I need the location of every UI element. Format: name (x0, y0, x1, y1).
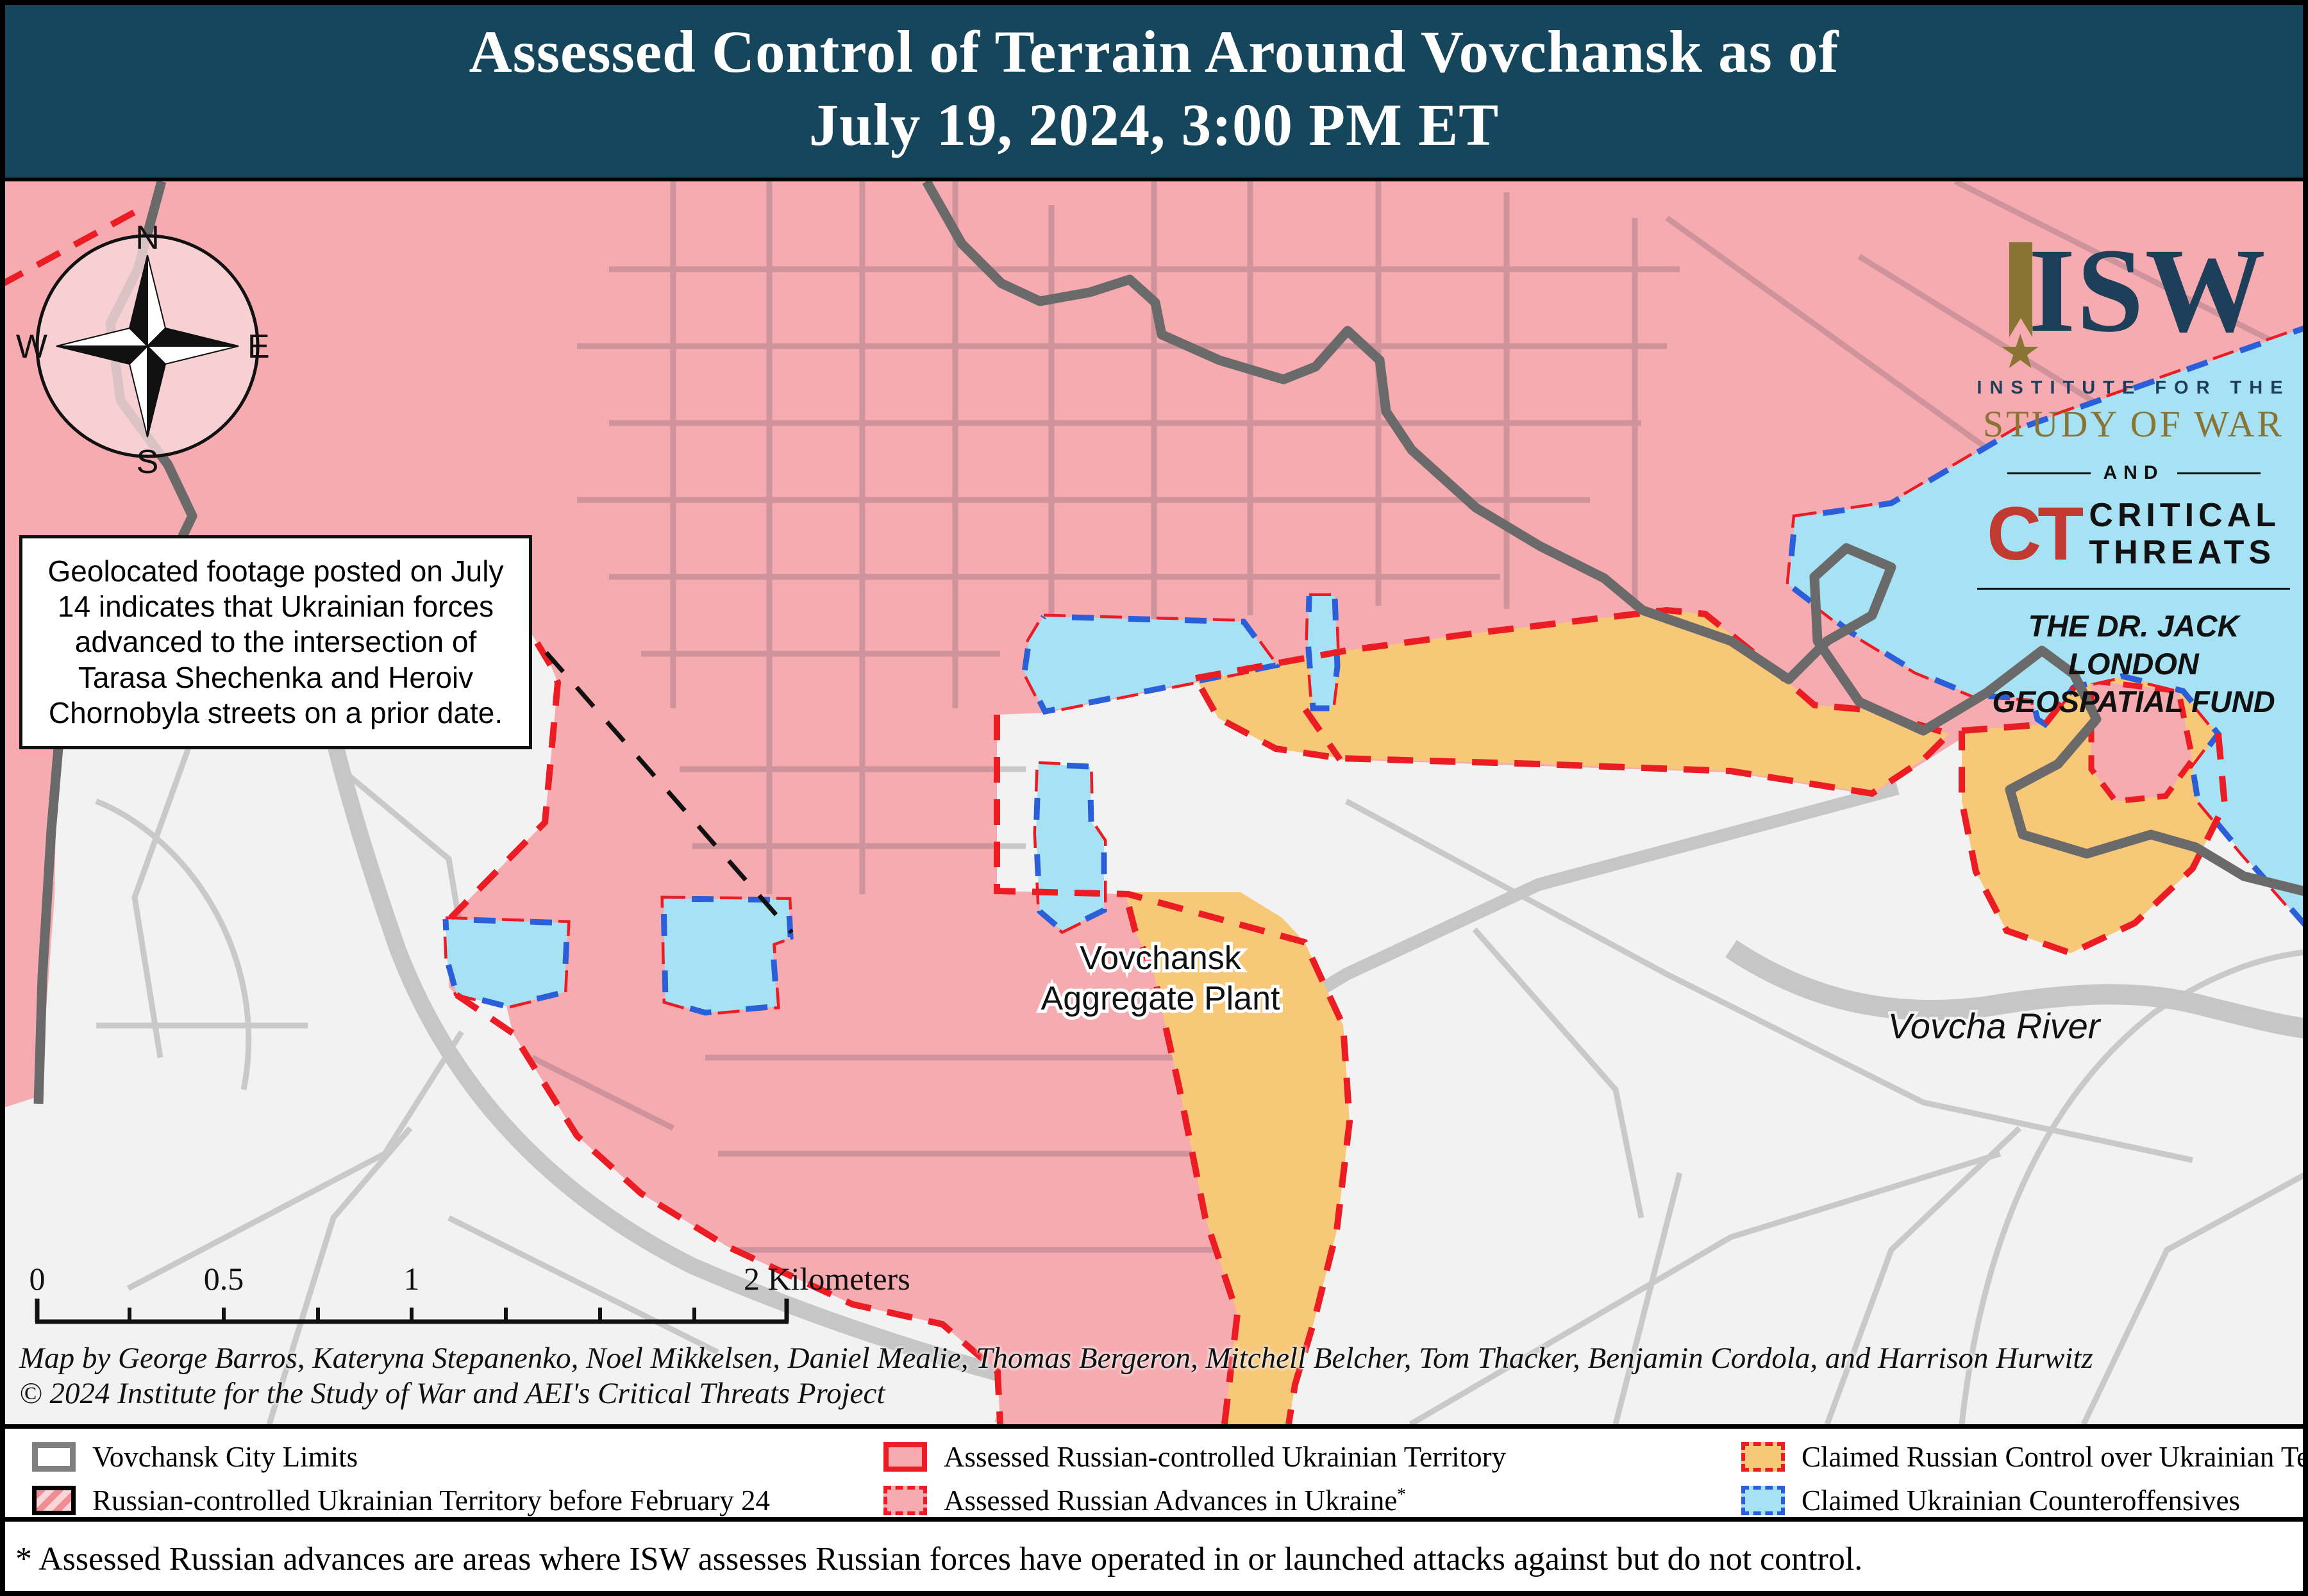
scale-1: 1 (404, 1261, 420, 1297)
legend-claimed-russian-label: Claimed Russian Control over Ukrainian T… (1802, 1440, 2308, 1474)
and-rule-right (2177, 472, 2261, 474)
credits-copyright: © 2024 Institute for the Study of War an… (19, 1376, 2289, 1411)
label-plant-line2: Aggregate Plant (1041, 980, 1280, 1017)
advances-label-text: Assessed Russian Advances in Ukraine (944, 1484, 1397, 1517)
ct-threats: THREATS (2089, 534, 2275, 571)
legend-claimed-ukrainian: Claimed Ukrainian Counteroffensives (1741, 1483, 2240, 1518)
scale-2km: 2 Kilometers (744, 1261, 910, 1297)
compass-n: N (135, 219, 160, 256)
legend-bar: Vovchansk City Limits Russian-controlled… (0, 1424, 2308, 1522)
scale-0: 0 (29, 1261, 46, 1297)
legend-claimed-ukrainian-label: Claimed Ukrainian Counteroffensives (1802, 1484, 2240, 1517)
and-text: AND (2103, 462, 2164, 484)
legend-assessed-control: Assessed Russian-controlled Ukrainian Te… (883, 1439, 1506, 1475)
credits-authors: Map by George Barros, Kateryna Stepanenk… (19, 1341, 2289, 1376)
footnote-bar: * Assessed Russian advances are areas wh… (0, 1522, 2308, 1596)
isw-ct-logo: ★ ISW INSTITUTE FOR THE STUDY OF WAR AND… (1967, 238, 2300, 721)
legend-pre-feb24: Russian-controlled Ukrainian Territory b… (32, 1483, 770, 1518)
map-title-line1: Assessed Control of Terrain Around Vovch… (469, 16, 1839, 88)
and-rule-left (2007, 472, 2091, 474)
label-plant-line1: Vovchansk (1080, 940, 1241, 977)
fund-line2: GEOSPATIAL FUND (1992, 685, 2275, 719)
legend-assessed-control-label: Assessed Russian-controlled Ukrainian Te… (944, 1440, 1506, 1474)
legend-city-limits: Vovchansk City Limits (32, 1439, 358, 1475)
legend-assessed-advances: Assessed Russian Advances in Ukraine* (883, 1483, 1406, 1518)
footnote-text: * Assessed Russian advances are areas wh… (15, 1540, 1862, 1578)
ct-critical: CRITICAL (2089, 497, 2280, 534)
legend-city-limits-label: Vovchansk City Limits (92, 1440, 358, 1474)
compass-s: S (137, 444, 159, 481)
title-bar: Assessed Control of Terrain Around Vovch… (0, 0, 2308, 181)
logo-divider (1977, 588, 2291, 590)
compass-w: W (16, 328, 47, 365)
ct-monogram: CT (1987, 500, 2080, 568)
map-title-line2: July 19, 2024, 3:00 PM ET (809, 89, 1499, 162)
swatch-assessed-control (883, 1442, 927, 1472)
map-credits: Map by George Barros, Kateryna Stepanenk… (19, 1341, 2289, 1412)
advances-asterisk: * (1397, 1484, 1406, 1504)
fund-line1: THE DR. JACK LONDON (2028, 609, 2239, 681)
isw-study-of-war: STUDY OF WAR (1983, 403, 2284, 445)
scale-05: 0.5 (204, 1261, 244, 1297)
label-river: Vovcha River (1888, 1006, 2102, 1046)
annotation-box: Geolocated footage posted on July 14 ind… (19, 535, 532, 749)
swatch-claimed-russian (1741, 1442, 1785, 1472)
isw-letters: ISW (2028, 220, 2267, 360)
legend-claimed-russian: Claimed Russian Control over Ukrainian T… (1741, 1439, 2308, 1475)
geospatial-fund-credit: THE DR. JACK LONDON GEOSPATIAL FUND (1967, 608, 2300, 720)
legend-assessed-advances-label: Assessed Russian Advances in Ukraine* (944, 1484, 1406, 1517)
annotation-text: Geolocated footage posted on July 14 ind… (48, 554, 504, 729)
logo-and-row: AND (2007, 462, 2261, 484)
compass-e: E (247, 328, 270, 365)
swatch-assessed-advances (883, 1486, 927, 1515)
map-canvas: Vovchansk Aggregate Plant Vovcha River N… (0, 181, 2308, 1424)
isw-control-map-screenshot: Assessed Control of Terrain Around Vovch… (0, 0, 2308, 1596)
critical-threats-logo: CT CRITICAL THREATS (1987, 497, 2280, 571)
legend-pre-feb24-label: Russian-controlled Ukrainian Territory b… (92, 1484, 770, 1517)
swatch-claimed-ukrainian (1741, 1486, 1785, 1515)
swatch-city-limits (32, 1442, 76, 1472)
map-svg: Vovchansk Aggregate Plant Vovcha River N… (0, 181, 2308, 1424)
isw-institute-line: INSTITUTE FOR THE (1977, 378, 2290, 399)
isw-wordmark: ★ ISW (1999, 238, 2268, 376)
swatch-pre-feb24 (32, 1486, 76, 1515)
